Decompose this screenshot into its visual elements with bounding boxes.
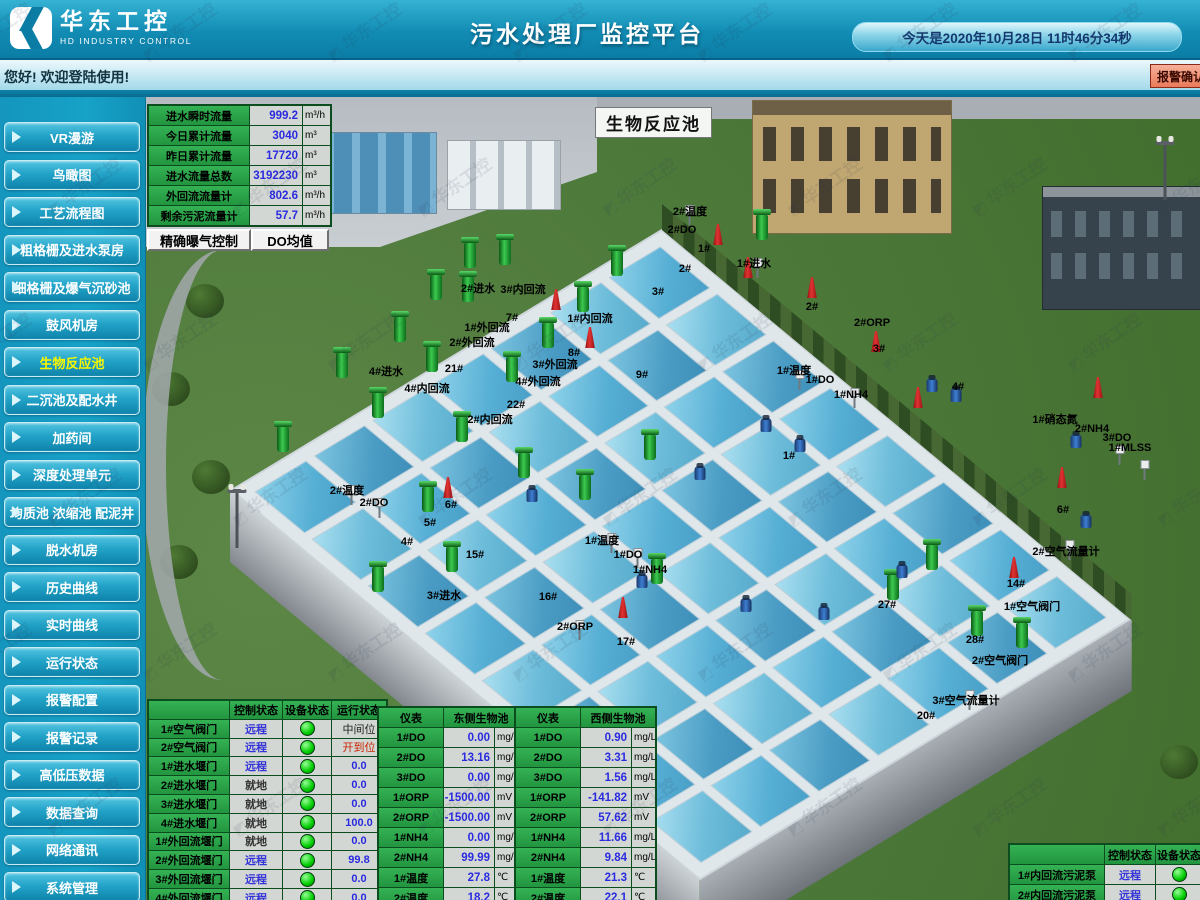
west-instruments-table: 仪表西侧生物池1#DO0.90mg/L2#DO3.31mg/L3#DO1.56m… — [514, 706, 657, 900]
instrument-value: 1.56 — [581, 768, 631, 787]
inflow-table: 进水瞬时流量999.2m³/h今日累计流量3040m³昨日累计流量17720m³… — [147, 104, 332, 227]
triangle-right-icon — [12, 656, 21, 668]
status-indicator — [300, 815, 315, 830]
aeration-buttons: 精确曝气控制 DO均值 — [147, 229, 332, 251]
sidebar-item-label: 鸟瞰图 — [52, 165, 91, 184]
sensor-label: 16# — [539, 591, 557, 603]
sidebar-item-20[interactable]: 网络通讯 — [4, 835, 140, 865]
instrument-name: 2#NH4 — [379, 848, 443, 867]
sidebar-item-label: 历史曲线 — [46, 578, 98, 597]
status-indicator — [300, 721, 315, 736]
sensor-label: 9# — [636, 369, 648, 381]
triangle-right-icon — [12, 581, 21, 593]
sensor-label: 21# — [445, 363, 463, 375]
green-valve-icon — [518, 452, 530, 478]
instrument-value: 0.00 — [444, 728, 494, 747]
green-valve-icon — [542, 322, 554, 348]
pump-icon — [527, 488, 538, 502]
sidebar-item-11[interactable]: 均质池 浓缩池 配泥井 — [4, 497, 140, 527]
control-state: 远程 — [230, 720, 282, 738]
flow-row-unit: m³ — [303, 126, 330, 145]
sensor-label: 1#空气阀门 — [1004, 598, 1060, 614]
instrument-name: 1#ORP — [516, 788, 580, 807]
window-row — [763, 127, 941, 161]
sensor-label: 15# — [466, 549, 484, 561]
sidebar-item-label: 鼓风机房 — [46, 315, 98, 334]
instrument-name: 1#温度 — [379, 868, 443, 887]
sidebar-list: VR漫游鸟瞰图工艺流程图粗格栅及进水泵房细格栅及爆气沉砂池鼓风机房生物反应池二沉… — [0, 97, 145, 900]
flow-row-value: 57.7 — [250, 206, 302, 225]
green-valve-icon — [499, 239, 511, 265]
green-valve-icon — [430, 274, 442, 300]
flow-row-value: 17720 — [250, 146, 302, 165]
sensor-label: 4# — [401, 536, 413, 548]
sidebar-item-label: 均质池 浓缩池 配泥井 — [10, 503, 134, 522]
device-state-cell — [1156, 865, 1200, 884]
sensor-label: 4#进水 — [369, 363, 403, 379]
sensor-label: 2#进水 — [461, 280, 495, 296]
sensor-label: 1#硝态氮 — [1032, 411, 1077, 427]
sensor-label: 2#空气流量计 — [1032, 543, 1099, 559]
sidebar-item-label: 系统管理 — [46, 878, 98, 897]
sensor-label: 6# — [445, 499, 457, 511]
flow-row-label: 外回流流量计 — [149, 186, 249, 205]
sensor-label: 27# — [878, 599, 896, 611]
triangle-right-icon — [12, 169, 21, 181]
device-name: 4#进水堰门 — [149, 814, 229, 832]
instrument-name: 1#NH4 — [379, 828, 443, 847]
sidebar-item-15[interactable]: 运行状态 — [4, 647, 140, 677]
green-valve-icon — [1016, 622, 1028, 648]
sensor-label: 2#温度 — [330, 482, 364, 498]
sidebar-item-14[interactable]: 实时曲线 — [4, 610, 140, 640]
flow-row-value: 802.6 — [250, 186, 302, 205]
alarm-confirm-button[interactable]: 报警确认 — [1150, 64, 1200, 88]
sidebar-item-label: 运行状态 — [46, 653, 98, 672]
green-valve-icon — [756, 214, 768, 240]
green-valve-icon — [277, 426, 289, 452]
column-header: 设备状态 — [283, 701, 331, 719]
status-indicator — [300, 759, 315, 774]
sensor-label: 2#ORP — [557, 621, 593, 633]
flow-row-value: 3192230 — [250, 166, 302, 185]
flow-row-label: 今日累计流量 — [149, 126, 249, 145]
control-state: 远程 — [230, 889, 282, 900]
sensor-label: 17# — [617, 636, 635, 648]
column-header: 设备状态 — [1156, 845, 1200, 864]
flow-row-value: 999.2 — [250, 106, 302, 125]
welcome-message: 您好! 欢迎登陆使用! — [4, 67, 129, 87]
status-indicator — [300, 740, 315, 755]
instrument-unit: mg/L — [632, 728, 655, 747]
sidebar-item-label: 细格栅及爆气沉砂池 — [13, 278, 130, 297]
instrument-name: 1#NH4 — [516, 828, 580, 847]
status-indicator — [300, 778, 315, 793]
sidebar-item-label: 深度处理单元 — [33, 465, 111, 484]
triangle-right-icon — [12, 806, 21, 818]
triangle-right-icon — [12, 694, 21, 706]
flow-row-label: 剩余污泥流量计 — [149, 206, 249, 225]
instrument-name: 1#DO — [379, 728, 443, 747]
sidebar-item-label: 报警配置 — [46, 690, 98, 709]
control-state: 就地 — [230, 814, 282, 832]
control-state: 就地 — [230, 776, 282, 794]
brick-building — [752, 100, 952, 234]
device-name: 1#空气阀门 — [149, 720, 229, 738]
sensor-label: 6# — [1057, 504, 1069, 516]
pump-icon — [741, 598, 752, 612]
pump-status-panel: 控制状态设备状态运行状态1#内回流污泥泵远程2#内回流污泥泵远程 — [1008, 843, 1200, 900]
red-valve-icon — [912, 387, 924, 408]
instrument-name: 2#温度 — [379, 888, 443, 900]
instrument-value: 0.90 — [581, 728, 631, 747]
instrument-name: 2#DO — [379, 748, 443, 767]
header-bar: 华东工控 HD INDUSTRY CONTROL 污水处理厂监控平台 今天是20… — [0, 0, 1200, 60]
subheader-bar: 您好! 欢迎登陆使用! 报警确认 — [0, 60, 1200, 90]
column-header: 仪表 — [379, 708, 443, 727]
sensor-label: 1# — [698, 243, 710, 255]
sidebar-item-5[interactable]: 细格栅及爆气沉砂池 — [4, 272, 140, 302]
sidebar-item-13[interactable]: 历史曲线 — [4, 572, 140, 602]
instrument-value: 13.16 — [444, 748, 494, 767]
window-row — [763, 179, 941, 213]
triangle-right-icon — [12, 319, 21, 331]
sensor-label: 4#内回流 — [404, 380, 449, 396]
sidebar-item-6[interactable]: 鼓风机房 — [4, 310, 140, 340]
instrument-value: 0.00 — [444, 768, 494, 787]
column-header: 控制状态 — [1105, 845, 1155, 864]
red-valve-icon — [712, 224, 724, 245]
red-valve-icon — [1092, 377, 1104, 398]
device-name: 2#空气阀门 — [149, 739, 229, 757]
instrument-unit: ℃ — [632, 868, 655, 887]
sidebar-item-12[interactable]: 脱水机房 — [4, 535, 140, 565]
sensor-label: 1#外回流 — [464, 319, 509, 335]
sensor-label: 3# — [652, 286, 664, 298]
device-state-cell — [283, 851, 331, 869]
logo-title: 华东工控 — [60, 10, 192, 33]
sensor-label: 1#NH4 — [633, 564, 667, 576]
sidebar-item-17[interactable]: 报警记录 — [4, 722, 140, 752]
instrument-value: 9.84 — [581, 848, 631, 867]
triangle-right-icon — [12, 244, 21, 256]
east-instruments-table: 仪表东侧生物池1#DO0.00mg/L2#DO13.16mg/L3#DO0.00… — [377, 706, 520, 900]
sensor-label: 2# — [679, 263, 691, 275]
sidebar-item-3[interactable]: 工艺流程图 — [4, 197, 140, 227]
sidebar-item-21[interactable]: 系统管理 — [4, 872, 140, 900]
instrument-value: 21.3 — [581, 868, 631, 887]
green-valve-icon — [971, 610, 983, 636]
control-state: 远程 — [230, 739, 282, 757]
pump-icon — [1071, 434, 1082, 448]
flow-row-unit: m³/h — [303, 206, 330, 225]
logo-icon — [10, 7, 52, 49]
column-header: 西侧生物池 — [581, 708, 655, 727]
inflow-data-panel: 进水瞬时流量999.2m³/h今日累计流量3040m³昨日累计流量17720m³… — [147, 104, 332, 251]
sensor-label: 2# — [806, 301, 818, 313]
device-name: 1#外回流堰门 — [149, 833, 229, 851]
sensor-label: 2#DO — [360, 497, 389, 509]
column-header — [1010, 845, 1104, 864]
datetime-display: 今天是2020年10月28日 11时46分34秒 — [852, 22, 1182, 52]
triangle-right-icon — [12, 131, 21, 143]
triangle-right-icon — [12, 619, 21, 631]
sidebar-item-9[interactable]: 加药间 — [4, 422, 140, 452]
instrument-unit: mg/L — [632, 768, 655, 787]
sidebar-item-label: 高低压数据 — [39, 765, 104, 784]
small-tanks — [447, 140, 561, 210]
instrument-name: 2#ORP — [516, 808, 580, 827]
status-indicator — [300, 872, 315, 887]
sidebar-item-18[interactable]: 高低压数据 — [4, 760, 140, 790]
red-valve-icon — [1056, 467, 1068, 488]
street-lamp — [236, 492, 239, 548]
green-valve-icon — [579, 474, 591, 500]
triangle-right-icon — [12, 206, 21, 218]
pump-status-table: 控制状态设备状态运行状态1#内回流污泥泵远程2#内回流污泥泵远程 — [1008, 843, 1200, 900]
flow-row-value: 3040 — [250, 126, 302, 145]
green-valve-icon — [926, 544, 938, 570]
flow-row-unit: m³ — [303, 146, 330, 165]
triangle-right-icon — [12, 281, 21, 293]
device-name: 1#内回流污泥泵 — [1010, 865, 1104, 884]
sidebar-item-label: 网络通讯 — [46, 840, 98, 859]
sensor-label: 2#温度 — [673, 203, 707, 219]
sensor-label: 1#DO — [614, 549, 643, 561]
device-state-cell — [283, 720, 331, 738]
sensor-label: 14# — [1007, 578, 1025, 590]
device-state-cell — [283, 776, 331, 794]
instrument-value: 27.8 — [444, 868, 494, 887]
instrument-value: 57.62 — [581, 808, 631, 827]
instrument-unit: mV — [632, 788, 655, 807]
sensor-label: 1#NH4 — [834, 389, 868, 401]
sidebar-item-1[interactable]: VR漫游 — [4, 122, 140, 152]
valve-status-panel: 控制状态设备状态运行状态1#空气阀门远程中间位2#空气阀门远程开到位1#进水堰门… — [147, 699, 388, 900]
device-state-cell — [283, 889, 331, 900]
control-state: 就地 — [230, 833, 282, 851]
roof — [753, 101, 951, 115]
green-valve-icon — [372, 392, 384, 418]
instrument-post-icon — [1141, 460, 1150, 480]
pump-icon — [1081, 514, 1092, 528]
column-header: 仪表 — [516, 708, 580, 727]
sidebar-item-8[interactable]: 二沉池及配水井 — [4, 385, 140, 415]
sensor-label: 3#外回流 — [532, 356, 577, 372]
sidebar-item-label: 脱水机房 — [46, 540, 98, 559]
control-state: 远程 — [230, 851, 282, 869]
device-state-cell — [283, 833, 331, 851]
company-logo: 华东工控 HD INDUSTRY CONTROL — [10, 7, 192, 49]
sensor-label: 1#温度 — [585, 532, 619, 548]
sidebar-item-4[interactable]: 粗格栅及进水泵房 — [4, 235, 140, 265]
status-indicator — [1172, 887, 1187, 900]
sidebar-item-19[interactable]: 数据查询 — [4, 797, 140, 827]
page-title: 污水处理厂监控平台 — [470, 15, 704, 49]
instrument-name: 2#NH4 — [516, 848, 580, 867]
triangle-right-icon — [12, 431, 21, 443]
sensor-label: 1#DO — [806, 374, 835, 386]
device-state-cell — [283, 739, 331, 757]
sensor-label: 1#内回流 — [567, 310, 612, 326]
device-state-cell — [1156, 885, 1200, 900]
sensor-label: 2#内回流 — [467, 411, 512, 427]
sidebar-item-10[interactable]: 深度处理单元 — [4, 460, 140, 490]
sensor-label: 28# — [966, 634, 984, 646]
device-name: 1#进水堰门 — [149, 757, 229, 775]
pump-icon — [695, 466, 706, 480]
pump-icon — [795, 438, 806, 452]
precise-aeration-button[interactable]: 精确曝气控制 — [147, 229, 251, 251]
instrument-unit: mg/L — [632, 848, 655, 867]
app-window: 2#进水3#内回流7#1#外回流2#外回流1#内回流4#进水21#4#内回流8#… — [0, 0, 1200, 900]
instrument-value: -1500.00 — [444, 808, 494, 827]
green-valve-icon — [426, 346, 438, 372]
instrument-name: 2#温度 — [516, 888, 580, 900]
area-title: 生物反应池 — [595, 107, 712, 138]
instrument-value: 18.2 — [444, 888, 494, 900]
sensor-label: 2#空气阀门 — [972, 652, 1028, 668]
sensor-label: 2#ORP — [854, 317, 890, 329]
device-name: 2#进水堰门 — [149, 776, 229, 794]
instrument-name: 1#DO — [516, 728, 580, 747]
instrument-name: 3#DO — [379, 768, 443, 787]
navigation-sidebar: VR漫游鸟瞰图工艺流程图粗格栅及进水泵房细格栅及爆气沉砂池鼓风机房生物反应池二沉… — [0, 97, 146, 900]
control-state: 远程 — [230, 757, 282, 775]
sidebar-item-2[interactable]: 鸟瞰图 — [4, 160, 140, 190]
triangle-right-icon — [12, 881, 21, 893]
valve-status-table: 控制状态设备状态运行状态1#空气阀门远程中间位2#空气阀门远程开到位1#进水堰门… — [147, 699, 388, 900]
green-valve-icon — [446, 546, 458, 572]
flow-row-unit: m³ — [303, 166, 330, 185]
flow-row-label: 进水流量总数 — [149, 166, 249, 185]
status-indicator — [300, 853, 315, 868]
instrument-unit: ℃ — [632, 888, 655, 900]
triangle-right-icon — [12, 769, 21, 781]
triangle-right-icon — [12, 394, 21, 406]
sidebar-item-16[interactable]: 报警配置 — [4, 685, 140, 715]
instrument-value: 3.31 — [581, 748, 631, 767]
control-state: 就地 — [230, 795, 282, 813]
instrument-value: -1500.00 — [444, 788, 494, 807]
green-valve-icon — [394, 316, 406, 342]
sidebar-item-label: VR漫游 — [50, 128, 94, 147]
instrument-name: 2#ORP — [379, 808, 443, 827]
triangle-right-icon — [12, 469, 21, 481]
west-instruments-panel: 仪表西侧生物池1#DO0.90mg/L2#DO3.31mg/L3#DO1.56m… — [514, 706, 657, 900]
sensor-label: 2#外回流 — [449, 334, 494, 350]
sensor-label: 1# — [783, 450, 795, 462]
instrument-unit: mV — [632, 808, 655, 827]
green-valve-icon — [577, 286, 589, 312]
sensor-label: 3#进水 — [427, 587, 461, 603]
device-state-cell — [283, 795, 331, 813]
flow-row-label: 昨日累计流量 — [149, 146, 249, 165]
device-name: 3#外回流堰门 — [149, 870, 229, 888]
tree — [1160, 745, 1198, 779]
pump-icon — [761, 418, 772, 432]
street-lamp — [1164, 144, 1167, 200]
green-valve-icon — [336, 352, 348, 378]
sensor-label: 3#空气流量计 — [932, 692, 999, 708]
control-state: 远程 — [1105, 865, 1155, 884]
column-header: 控制状态 — [230, 701, 282, 719]
sidebar-item-label: 生物反应池 — [39, 353, 104, 372]
triangle-right-icon — [12, 544, 21, 556]
sensor-label: 1#MLSS — [1109, 442, 1152, 454]
sidebar-item-label: 工艺流程图 — [39, 203, 104, 222]
status-indicator — [300, 890, 315, 900]
green-valve-icon — [372, 566, 384, 592]
sensor-label: 5# — [424, 517, 436, 529]
status-indicator — [300, 796, 315, 811]
triangle-right-icon — [12, 731, 21, 743]
sensor-label: 20# — [917, 710, 935, 722]
sidebar-item-label: 实时曲线 — [46, 615, 98, 634]
green-valve-icon — [422, 486, 434, 512]
device-state-cell — [283, 814, 331, 832]
pump-icon — [927, 378, 938, 392]
flow-row-label: 进水瞬时流量 — [149, 106, 249, 125]
green-valve-icon — [644, 434, 656, 460]
instrument-name: 2#DO — [516, 748, 580, 767]
sensor-label: 3# — [873, 343, 885, 355]
window-row — [1051, 253, 1193, 279]
pump-icon — [637, 574, 648, 588]
column-header: 东侧生物池 — [444, 708, 518, 727]
sensor-label: 22# — [507, 399, 525, 411]
green-valve-icon — [611, 250, 623, 276]
instrument-value: -141.82 — [581, 788, 631, 807]
instrument-name: 3#DO — [516, 768, 580, 787]
triangle-right-icon — [12, 844, 21, 856]
sidebar-item-label: 报警记录 — [46, 728, 98, 747]
green-valve-icon — [456, 416, 468, 442]
sensor-label: 3#内回流 — [500, 281, 545, 297]
control-state: 远程 — [230, 870, 282, 888]
divider — [0, 90, 1200, 97]
roof — [1043, 187, 1200, 197]
instrument-value: 0.00 — [444, 828, 494, 847]
instrument-unit: mg/L — [632, 828, 655, 847]
dark-building — [1042, 186, 1200, 310]
do-average-button[interactable]: DO均值 — [251, 229, 329, 251]
sidebar-item-label: 加药间 — [52, 428, 91, 447]
device-state-cell — [283, 757, 331, 775]
sensor-label: 4#外回流 — [515, 373, 560, 389]
sidebar-item-7[interactable]: 生物反应池 — [4, 347, 140, 377]
red-valve-icon — [806, 277, 818, 298]
east-instruments-panel: 仪表东侧生物池1#DO0.00mg/L2#DO13.16mg/L3#DO0.00… — [377, 706, 520, 900]
flow-row-unit: m³/h — [303, 106, 330, 125]
pump-icon — [819, 606, 830, 620]
sensor-label: 4# — [952, 381, 964, 393]
instrument-value: 99.99 — [444, 848, 494, 867]
sidebar-item-label: 二沉池及配水井 — [26, 390, 117, 409]
device-state-cell — [283, 870, 331, 888]
device-name: 2#外回流堰门 — [149, 851, 229, 869]
status-indicator — [1172, 867, 1187, 882]
sidebar-item-label: 粗格栅及进水泵房 — [20, 240, 124, 259]
green-valve-icon — [464, 242, 476, 268]
instrument-value: 11.66 — [581, 828, 631, 847]
logo-subtitle: HD INDUSTRY CONTROL — [60, 37, 192, 46]
sensor-label: 1#进水 — [737, 255, 771, 271]
window-row — [1051, 211, 1193, 237]
device-name: 4#外回流堰门 — [149, 889, 229, 900]
sensor-label: 2#DO — [668, 224, 697, 236]
instrument-name: 1#ORP — [379, 788, 443, 807]
